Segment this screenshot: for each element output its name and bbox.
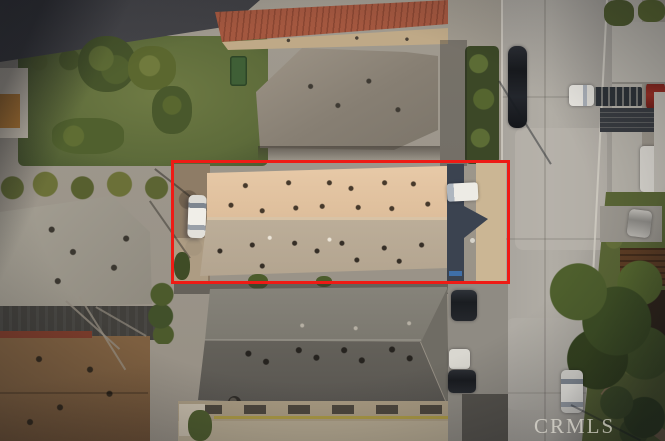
gray-roof-shadow <box>258 146 440 161</box>
gray-roof-house-left <box>0 196 152 308</box>
tree-row-lawn <box>52 118 124 154</box>
left-edge-house-orange-roof <box>0 94 20 128</box>
dark-ground-bottom <box>462 394 508 441</box>
property-boundary-outline <box>171 160 510 284</box>
hedge-column <box>465 46 499 164</box>
tan-building-windows <box>200 405 450 414</box>
brown-roof-eave <box>0 331 92 338</box>
brown-roof-house <box>0 336 150 441</box>
tan-building-roof-edge <box>214 416 454 419</box>
lower-building-upper-slope <box>205 287 448 342</box>
truck-flatbed-load <box>594 87 642 106</box>
white-car-driveway <box>449 349 470 369</box>
lower-building-ridge <box>205 339 421 341</box>
tan-building-lower <box>178 421 458 441</box>
silver-car-driveway <box>626 209 652 239</box>
crmls-watermark: CRMLS <box>534 414 615 439</box>
big-tree-right <box>540 248 665 394</box>
brown-roof-ridge <box>0 392 148 394</box>
green-dumpster <box>230 56 247 86</box>
greenery-bottom-gap <box>188 410 212 441</box>
parked-dark-car-top <box>508 46 527 128</box>
white-truck-cab <box>569 85 594 106</box>
aerial-photo: CRMLS <box>0 0 665 441</box>
tree-cluster <box>128 46 176 90</box>
dark-car-driveway <box>448 370 476 393</box>
street-patch <box>515 128 607 250</box>
right-edge-building <box>654 92 665 192</box>
tree-cluster-2 <box>152 86 192 134</box>
building-top-right <box>612 22 665 84</box>
dark-suv-driveway <box>451 290 477 321</box>
hedge-top-right <box>604 0 634 26</box>
greenery-left-gap <box>148 282 176 344</box>
hedge-shadow <box>440 40 467 166</box>
hedge-top-right-2 <box>638 0 665 22</box>
dark-structure-right <box>600 108 654 132</box>
